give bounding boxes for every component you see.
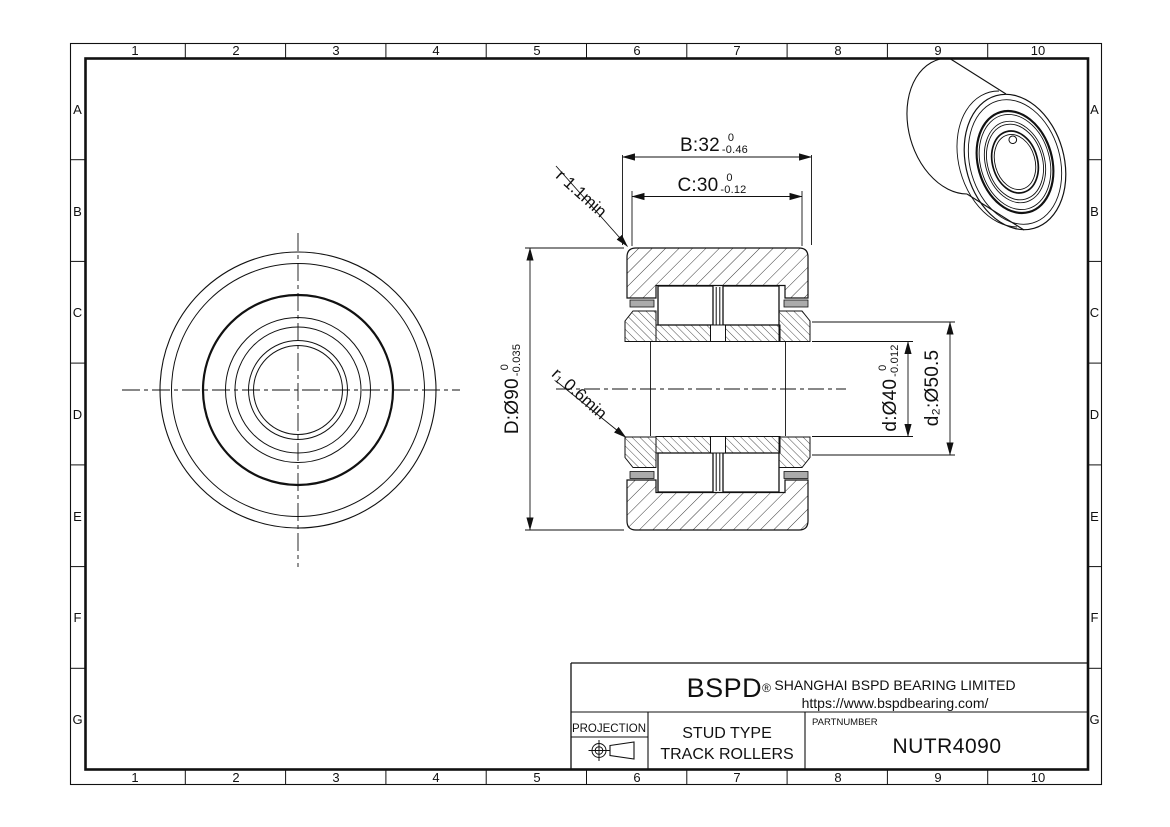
part-number: NUTR4090 bbox=[857, 735, 1037, 759]
section-view bbox=[556, 248, 846, 530]
grid-row-label: E bbox=[1088, 509, 1102, 523]
grid-row-label: G bbox=[70, 712, 85, 726]
grid-column-label: 3 bbox=[324, 44, 348, 58]
grid-column-label: 5 bbox=[525, 44, 549, 58]
grid-column-label: 1 bbox=[123, 771, 147, 785]
dim-tolerance-C: 0 -0.12 bbox=[720, 173, 746, 196]
grid-row-label: C bbox=[1088, 305, 1102, 319]
brand-text: BSPD bbox=[687, 673, 763, 704]
dim-text-d: d:Ø40 bbox=[880, 379, 902, 432]
grid-column-label: 2 bbox=[224, 44, 248, 58]
dim-label-C: C:30 0 -0.12 bbox=[632, 174, 792, 198]
projection-symbol bbox=[589, 740, 635, 761]
dim-text-C: C:30 bbox=[677, 175, 718, 197]
outer-ring-section-top bbox=[627, 248, 808, 298]
dim-tolerance-D: 0 -0.035 bbox=[500, 344, 523, 376]
dim-label-D: D:Ø90 0 -0.035 bbox=[502, 314, 524, 464]
dim-text-D: D:Ø90 bbox=[502, 378, 524, 434]
front-view-centerlines bbox=[122, 233, 460, 567]
grid-row-label: D bbox=[1088, 407, 1102, 421]
grid-row-label: F bbox=[1088, 610, 1102, 624]
grid-column-label: 9 bbox=[926, 44, 950, 58]
product-type-line2: TRACK ROLLERS bbox=[652, 746, 802, 764]
grid-row-label: A bbox=[1088, 102, 1102, 116]
grid-column-label: 7 bbox=[725, 44, 749, 58]
iso-back-rim bbox=[907, 58, 967, 194]
grid-row-label: B bbox=[70, 204, 85, 218]
company-name: SHANGHAI BSPD BEARING LIMITED bbox=[765, 677, 1025, 693]
grid-column-label: 3 bbox=[324, 771, 348, 785]
dim-text-d2: d₂:Ø50.5 bbox=[922, 350, 944, 427]
dim-tolerance-d: 0 -0.012 bbox=[878, 344, 901, 376]
drawing-sheet: B:32 0 -0.46 C:30 0 -0.12 D:Ø90 0 -0.035… bbox=[0, 0, 1170, 827]
grid-column-label: 9 bbox=[926, 771, 950, 785]
grid-column-label: 10 bbox=[1026, 44, 1050, 58]
front-view bbox=[122, 233, 460, 567]
grid-row-label: F bbox=[70, 610, 85, 624]
grid-column-label: 7 bbox=[725, 771, 749, 785]
product-type-line1: STUD TYPE bbox=[652, 725, 802, 743]
dim-label-B: B:32 0 -0.46 bbox=[634, 134, 794, 158]
grid-row-label: E bbox=[70, 509, 85, 523]
dim-text-B: B:32 bbox=[680, 135, 720, 157]
part-number-label: PARTNUMBER bbox=[812, 716, 932, 728]
iso-lube-hole bbox=[1008, 135, 1017, 144]
projection-label: PROJECTION bbox=[569, 722, 649, 736]
roller bbox=[658, 286, 713, 325]
grid-column-label: 2 bbox=[224, 771, 248, 785]
outer-ring-section-bottom bbox=[627, 480, 808, 530]
grid-column-label: 8 bbox=[826, 771, 850, 785]
grid-column-label: 4 bbox=[424, 44, 448, 58]
roller bbox=[723, 286, 779, 325]
grid-row-label: G bbox=[1088, 712, 1102, 726]
dim-label-d2: d₂:Ø50.5 bbox=[922, 328, 944, 448]
grid-column-label: 5 bbox=[525, 771, 549, 785]
grid-column-label: 8 bbox=[826, 44, 850, 58]
grid-row-label: D bbox=[70, 407, 85, 421]
grid-column-label: 6 bbox=[625, 44, 649, 58]
grid-row-label: C bbox=[70, 305, 85, 319]
isometric-view bbox=[907, 58, 1081, 242]
grid-row-label: A bbox=[70, 102, 85, 116]
grid-row-label: B bbox=[1088, 204, 1102, 218]
company-website: https://www.bspdbearing.com/ bbox=[765, 695, 1025, 711]
grid-column-label: 1 bbox=[123, 44, 147, 58]
projection-cone bbox=[610, 742, 634, 759]
grid-column-label: 6 bbox=[625, 771, 649, 785]
roller bbox=[723, 453, 779, 492]
grid-column-label: 4 bbox=[424, 771, 448, 785]
grid-column-label: 10 bbox=[1026, 771, 1050, 785]
dim-tolerance-B: 0 -0.46 bbox=[722, 133, 748, 156]
roller bbox=[658, 453, 713, 492]
dim-label-d: d:Ø40 0 -0.012 bbox=[880, 318, 902, 458]
